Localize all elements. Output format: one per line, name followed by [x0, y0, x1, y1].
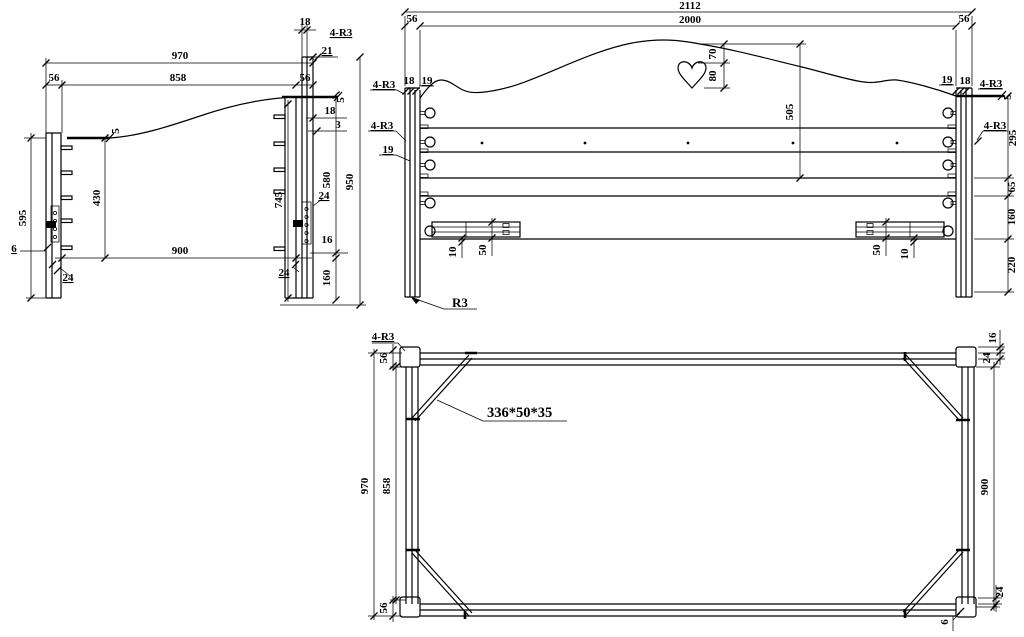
side-dim-580: 580: [321, 171, 333, 188]
front-label-4r3-top-left: 4-R3: [373, 79, 396, 91]
side-dim-970: 970: [172, 50, 189, 62]
side-dim-18-right: 18: [325, 105, 337, 117]
plan-dim-56-top: 56: [378, 352, 390, 364]
front-top-curve: [420, 40, 956, 98]
plan-label-4r3: 4-R3: [372, 331, 395, 343]
side-dim-3: 3: [335, 119, 341, 131]
plan-dim-858: 858: [381, 477, 393, 494]
drawing-canvas: 970 858 56 56 18 4-R3 21 5 5 18 3 595 43…: [0, 0, 1024, 637]
side-dim-18-top: 18: [300, 16, 312, 28]
front-right-leg: [943, 88, 972, 297]
side-dim-160: 160: [321, 269, 333, 286]
front-dim-18-left: 18: [404, 75, 416, 87]
front-dim-65: 65: [1006, 181, 1018, 193]
side-dimension-lines: [20, 24, 366, 305]
side-dim-430: 430: [91, 189, 103, 206]
plan-dim-970: 970: [359, 477, 371, 494]
side-label-4r3-top: 4-R3: [330, 27, 353, 39]
front-label-r3: R3: [452, 295, 468, 310]
front-slat-center-marks: [481, 142, 899, 145]
front-label-4r3-top-right: 4-R3: [980, 78, 1003, 90]
side-dim-21: 21: [322, 45, 333, 57]
front-dim-10-right: 10: [899, 248, 911, 260]
plan-rails: [406, 353, 974, 616]
side-flag-5-left: 5: [110, 128, 122, 134]
front-dim-2112: 2112: [679, 0, 701, 12]
plan-dimension-lines: [368, 330, 1005, 631]
front-dim-19-left-top: 19: [422, 75, 434, 87]
side-dim-745: 745: [273, 191, 285, 208]
plan-dim-24-top: 24: [981, 352, 993, 364]
side-dim-24-right: 24: [319, 190, 331, 202]
front-dim-2000: 2000: [679, 14, 702, 26]
plan-dim-16: 16: [987, 332, 999, 344]
front-dim-160: 160: [1006, 208, 1018, 225]
plan-dim-56-bottom: 56: [378, 602, 390, 614]
plan-view: 4-R3 56 56 970 858 900 16 24 24 6 336*50…: [359, 330, 1006, 631]
front-dim-10-left: 10: [447, 246, 459, 258]
front-dim-505: 505: [784, 103, 796, 120]
front-label-4r3-mid-right: 4-R3: [984, 120, 1007, 132]
front-dim-19-left: 19: [383, 144, 395, 156]
front-dim-19-right-top: 19: [942, 74, 954, 86]
plan-label-brace-size: 336*50*35: [487, 405, 552, 421]
side-dim-6: 6: [11, 243, 17, 255]
drawing-sheet: 970 858 56 56 18 4-R3 21 5 5 18 3 595 43…: [0, 0, 1024, 637]
side-view: 970 858 56 56 18 4-R3 21 5 5 18 3 595 43…: [11, 16, 366, 309]
front-flag-5-right: 5: [1002, 94, 1014, 100]
heart-cutout: [678, 62, 706, 88]
side-dim-56-left: 56: [49, 72, 61, 84]
front-dim-295: 295: [1007, 129, 1019, 146]
front-label-4r3-mid-left: 4-R3: [371, 120, 394, 132]
front-dim-220: 220: [1006, 256, 1018, 273]
side-right-post: [274, 57, 313, 298]
side-dim-56-right: 56: [300, 72, 312, 84]
front-dim-56-right: 56: [959, 13, 971, 25]
side-dim-24-bottom: 24: [279, 267, 291, 279]
side-dim-24-left: 24: [63, 272, 75, 284]
plan-dim-ticks: [371, 344, 1004, 620]
side-dim-858: 858: [170, 72, 187, 84]
r3-leader-arrow: [411, 297, 420, 304]
side-flag-5-right: 5: [335, 97, 347, 103]
front-view: 2112 2000 56 56 4-R3 18 19 4-R3 19 19 18…: [368, 0, 1019, 310]
front-dim-50-right: 50: [871, 244, 883, 256]
side-profile-curve: [110, 97, 296, 138]
plan-dim-900: 900: [979, 478, 991, 495]
front-dim-80: 80: [707, 70, 719, 82]
front-left-bracket: [432, 222, 520, 237]
plan-post-top-left: [400, 347, 420, 367]
plan-post-top-right: [956, 347, 976, 367]
plan-dim-6: 6: [939, 619, 951, 625]
side-dim-900: 900: [172, 245, 189, 257]
front-right-bracket: [856, 222, 944, 237]
front-dim-50-left: 50: [477, 244, 489, 256]
front-dim-70: 70: [707, 48, 719, 60]
side-dim-950: 950: [344, 173, 356, 190]
side-dim-595: 595: [17, 209, 29, 226]
front-dimension-lines: [368, 12, 1014, 309]
front-dim-56-left: 56: [407, 13, 419, 25]
front-left-leg: [405, 88, 435, 297]
plan-dim-24-bottom: 24: [994, 586, 1006, 598]
plan-corner-braces: [406, 352, 970, 619]
front-dim-18-right: 18: [960, 75, 972, 87]
side-dim-16: 16: [322, 234, 334, 246]
